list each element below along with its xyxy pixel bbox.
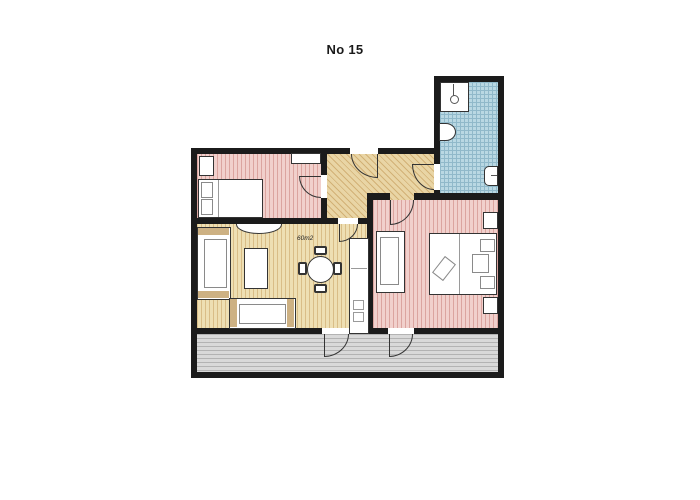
- pillow: [201, 182, 213, 198]
- coffee-table: [244, 248, 268, 289]
- nightstand: [199, 156, 214, 176]
- wall-shelf: [291, 153, 321, 164]
- floor-plan: No 15: [0, 0, 700, 500]
- counter-divider-line: [351, 268, 367, 269]
- pillow: [480, 276, 495, 289]
- sofa-bottom: [229, 298, 296, 329]
- sofa-armrest: [287, 299, 294, 327]
- sofa-left: [197, 227, 231, 300]
- chair: [314, 246, 327, 255]
- pillow: [201, 199, 213, 215]
- nightstand: [483, 297, 498, 314]
- sofa-cushion: [239, 304, 286, 324]
- blanket-line: [218, 180, 219, 217]
- chair: [314, 284, 327, 293]
- shower-knob-icon: [450, 95, 459, 104]
- wall-bedroom-left-right-upper: [321, 148, 327, 175]
- area-label: 60m2: [297, 235, 313, 242]
- bed-divider-line: [459, 234, 460, 294]
- wall-outer-bottom: [191, 372, 504, 378]
- wall-terrace-c: [414, 328, 504, 334]
- wardrobe-inner: [380, 237, 399, 285]
- chair: [333, 262, 342, 275]
- wall-terrace-b: [367, 328, 388, 334]
- wall-bedroom-right-top-b: [414, 193, 504, 200]
- wall-top-right-segment: [378, 148, 440, 154]
- sofa-armrest: [198, 228, 229, 235]
- chair: [298, 262, 307, 275]
- pillow: [472, 254, 489, 273]
- pillow: [480, 239, 495, 252]
- sink: [484, 166, 498, 186]
- shower: [440, 82, 469, 112]
- dining-table: [307, 256, 334, 283]
- sofa-armrest: [230, 299, 237, 327]
- kitchen-counter: [349, 238, 369, 334]
- stove-icon: [353, 300, 364, 310]
- nightstand: [483, 212, 498, 229]
- sofa-cushion: [204, 239, 227, 288]
- wardrobe: [376, 231, 405, 293]
- sink-basin-icon: [353, 312, 364, 322]
- plan-title: No 15: [250, 42, 440, 57]
- sofa-armrest: [198, 291, 229, 298]
- sink-tap-icon: [491, 175, 497, 176]
